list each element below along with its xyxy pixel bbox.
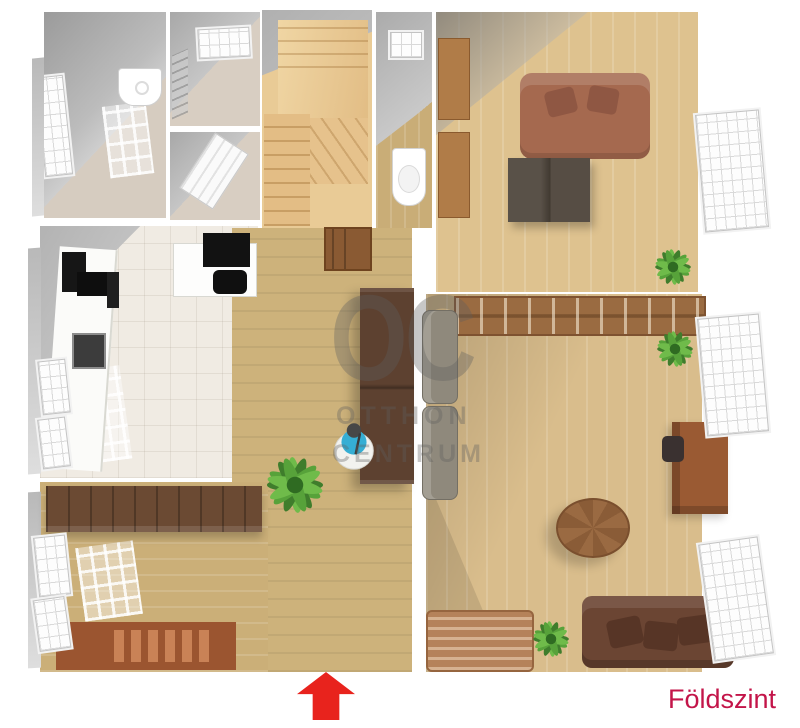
exterior-wall-segment	[32, 57, 44, 216]
window-icon	[695, 109, 769, 232]
washbasin	[118, 68, 162, 106]
sofa-pillow	[586, 85, 620, 116]
plant-icon	[654, 328, 696, 370]
gray-armchair	[422, 406, 458, 500]
window-icon	[697, 314, 769, 437]
coffee-table	[508, 158, 590, 222]
sofa-pillow	[543, 86, 578, 118]
sofa-pillow	[605, 615, 644, 649]
round-table	[556, 498, 630, 558]
stairs-lower-flight	[264, 114, 310, 226]
wardrobe-shelf	[46, 486, 262, 532]
stairs-top-steps	[278, 20, 368, 68]
window-light-patch	[102, 102, 154, 179]
monitor	[203, 233, 250, 267]
plant-icon	[530, 618, 572, 660]
room-small-top	[170, 12, 260, 126]
plant-icon	[262, 452, 328, 518]
open-door	[179, 132, 248, 209]
toilet	[392, 148, 426, 206]
desk-chair	[213, 270, 247, 294]
cooktop	[77, 272, 107, 296]
gray-armchair	[422, 310, 458, 404]
stairwell	[262, 10, 372, 228]
window-icon	[390, 32, 422, 58]
oven	[107, 272, 119, 308]
radiator	[172, 48, 188, 119]
plant-icon	[652, 246, 694, 288]
sofa-pillow	[643, 620, 680, 651]
sofa-brown	[520, 73, 650, 159]
sideboard	[56, 622, 236, 670]
floor-label: Földszint	[668, 684, 776, 715]
cabinet	[438, 38, 470, 120]
wooden-chest	[426, 610, 534, 672]
room-bathroom	[44, 12, 166, 218]
cabinet	[438, 132, 470, 218]
desk-chair	[662, 436, 684, 462]
window-icon	[33, 534, 71, 597]
window-icon	[197, 27, 250, 60]
interior-door	[324, 227, 372, 271]
window-icon	[37, 416, 71, 469]
room-kitchen	[40, 226, 258, 478]
room-wc	[376, 12, 432, 228]
window-icon	[37, 359, 70, 416]
person-figure	[332, 416, 376, 472]
kitchen-sink	[72, 333, 106, 369]
room-bottom-left	[40, 482, 268, 672]
entrance-arrow-icon	[297, 672, 355, 720]
window-light-patch	[75, 540, 143, 621]
room-pantry	[170, 132, 260, 220]
floorplan-canvas: OC OTTHON CENTRUM Földszint	[0, 0, 800, 728]
